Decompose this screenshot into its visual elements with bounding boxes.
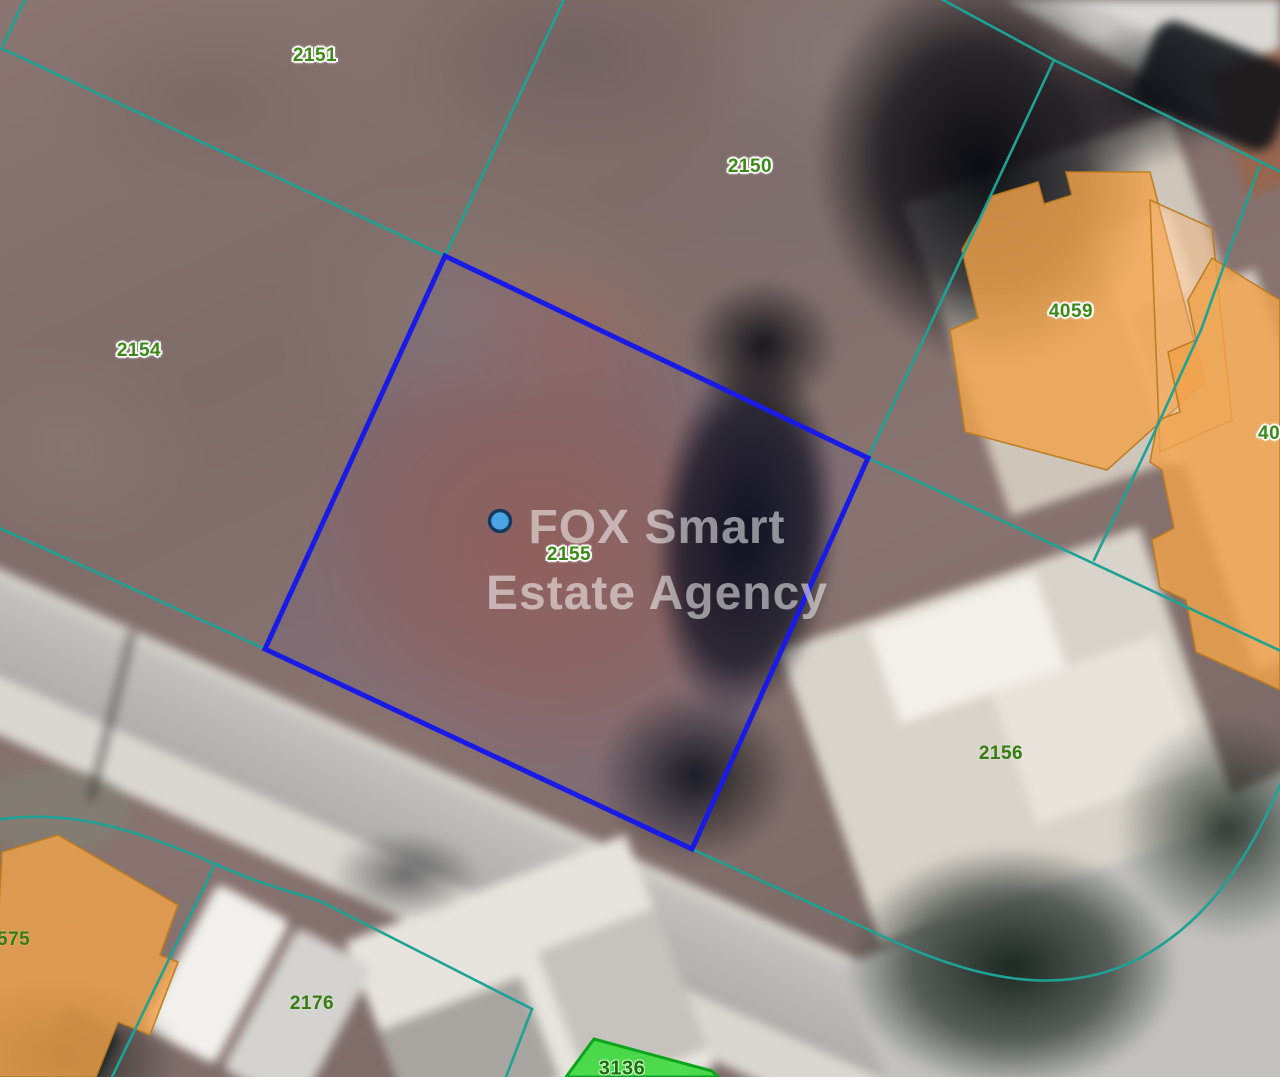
parcel-boundary-line xyxy=(3,0,27,45)
parcel-label-3136: 3136 xyxy=(599,1058,646,1077)
parcel-label-2151: 2151 xyxy=(293,45,337,67)
parcel-label-2154: 2154 xyxy=(117,340,161,362)
parcel-boundary-line xyxy=(692,778,1280,981)
parcel-label-2156: 2156 xyxy=(979,743,1023,765)
parcel-label-2155: 2155 xyxy=(547,544,591,566)
watermark: FOX Smart Estate Agency xyxy=(486,495,828,627)
watermark-line1: FOX Smart xyxy=(486,495,828,561)
parcel-boundary-line xyxy=(0,44,445,256)
parcel-boundary-line xyxy=(934,0,1280,174)
building-footprint-575 xyxy=(0,835,178,1077)
parcel-boundary-line xyxy=(445,0,566,256)
watermark-line2: Estate Agency xyxy=(486,561,828,627)
parcel-label-575-cut: 575 xyxy=(0,929,30,951)
satellite-map[interactable]: FOX Smart Estate Agency 2151 2150 2154 2… xyxy=(0,0,1280,1077)
parcel-label-40-cut: 40 xyxy=(1258,423,1280,445)
parcel-label-2150: 2150 xyxy=(728,156,772,178)
parcel-label-2176: 2176 xyxy=(290,993,334,1015)
parcel-boundary-line xyxy=(0,526,265,649)
parcel-label-4059: 4059 xyxy=(1049,301,1093,323)
